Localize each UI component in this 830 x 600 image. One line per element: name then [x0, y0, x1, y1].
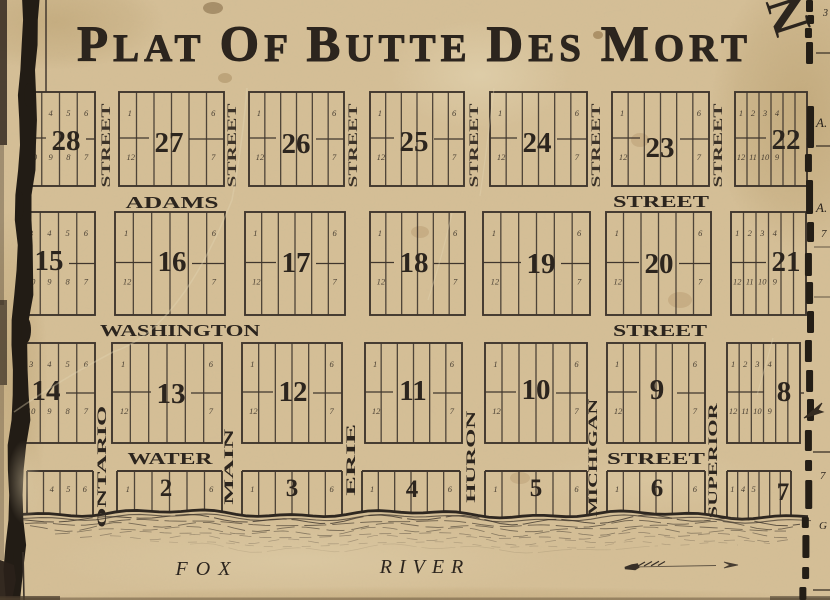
svg-text:12: 12: [256, 152, 265, 162]
svg-text:12: 12: [120, 406, 129, 416]
svg-text:12: 12: [492, 406, 501, 416]
svg-text:1: 1: [730, 484, 734, 494]
svg-text:12: 12: [614, 277, 623, 287]
svg-text:10: 10: [758, 277, 767, 287]
svg-text:3: 3: [762, 108, 767, 118]
svg-text:6: 6: [333, 228, 338, 238]
svg-text:6: 6: [577, 228, 582, 238]
svg-text:12: 12: [491, 277, 500, 287]
svg-text:12: 12: [619, 152, 628, 162]
svg-text:6: 6: [693, 484, 698, 494]
svg-text:STREET: STREET: [613, 321, 707, 340]
svg-text:7: 7: [333, 277, 338, 287]
svg-text:7: 7: [575, 152, 580, 162]
svg-text:7: 7: [821, 228, 827, 240]
svg-text:11: 11: [741, 406, 749, 416]
svg-text:7: 7: [450, 406, 455, 416]
svg-text:HURON: HURON: [464, 409, 478, 502]
svg-text:21: 21: [772, 246, 801, 278]
svg-text:7: 7: [820, 470, 826, 482]
svg-text:4: 4: [767, 359, 772, 369]
svg-text:19: 19: [527, 248, 556, 280]
svg-text:STREET: STREET: [613, 192, 709, 211]
svg-text:12: 12: [614, 406, 623, 416]
svg-text:ADAMS: ADAMS: [126, 193, 219, 212]
svg-text:6: 6: [209, 359, 214, 369]
svg-text:STREET: STREET: [711, 102, 725, 187]
svg-text:1: 1: [250, 484, 254, 494]
svg-text:1: 1: [731, 359, 735, 369]
svg-text:WATER: WATER: [128, 449, 215, 468]
svg-text:12: 12: [252, 277, 261, 287]
svg-text:3: 3: [286, 475, 299, 502]
svg-text:7: 7: [453, 277, 458, 287]
svg-text:1: 1: [250, 359, 254, 369]
svg-text:3: 3: [759, 228, 764, 238]
svg-text:RIVER: RIVER: [379, 556, 471, 578]
svg-text:A.: A.: [815, 115, 827, 130]
svg-text:7: 7: [697, 152, 702, 162]
svg-text:10: 10: [761, 152, 770, 162]
svg-text:15: 15: [35, 245, 64, 277]
svg-text:20: 20: [645, 248, 674, 280]
svg-text:ONTARIO: ONTARIO: [95, 406, 109, 528]
svg-text:7: 7: [577, 277, 582, 287]
svg-text:12: 12: [737, 152, 746, 162]
svg-text:12: 12: [249, 406, 258, 416]
svg-text:11: 11: [749, 152, 757, 162]
svg-text:1: 1: [128, 108, 132, 118]
svg-text:12: 12: [497, 152, 506, 162]
svg-text:1: 1: [253, 228, 257, 238]
svg-text:STREET: STREET: [607, 449, 705, 468]
svg-text:1: 1: [493, 359, 497, 369]
svg-text:5: 5: [530, 475, 543, 502]
svg-text:5: 5: [66, 359, 70, 369]
svg-text:1: 1: [739, 108, 743, 118]
svg-text:10: 10: [753, 406, 762, 416]
svg-text:1: 1: [615, 359, 619, 369]
svg-text:6: 6: [651, 475, 664, 502]
svg-text:5: 5: [66, 228, 70, 238]
svg-text:7: 7: [452, 152, 457, 162]
svg-text:FOX: FOX: [175, 558, 239, 580]
svg-text:11: 11: [399, 375, 426, 407]
svg-text:13: 13: [157, 378, 186, 410]
svg-text:7: 7: [330, 406, 335, 416]
svg-text:3: 3: [28, 359, 33, 369]
svg-text:G: G: [819, 520, 827, 532]
svg-text:2: 2: [160, 475, 173, 502]
svg-text:16: 16: [158, 246, 187, 278]
svg-text:1: 1: [121, 359, 125, 369]
svg-text:26: 26: [282, 128, 311, 160]
svg-text:STREET: STREET: [589, 102, 603, 187]
svg-text:1: 1: [615, 484, 619, 494]
svg-text:STREET: STREET: [99, 102, 113, 187]
svg-text:6: 6: [452, 108, 457, 118]
svg-text:12: 12: [377, 277, 386, 287]
svg-text:5: 5: [66, 108, 70, 118]
svg-text:1: 1: [498, 108, 502, 118]
svg-text:10: 10: [522, 374, 551, 406]
svg-text:7: 7: [693, 406, 698, 416]
svg-text:9: 9: [650, 374, 665, 406]
svg-text:5: 5: [66, 484, 70, 494]
svg-text:1: 1: [735, 228, 739, 238]
svg-text:1: 1: [373, 359, 377, 369]
svg-text:3: 3: [822, 8, 828, 19]
svg-text:A.: A.: [815, 200, 827, 215]
svg-text:12: 12: [123, 277, 132, 287]
svg-text:11: 11: [746, 277, 754, 287]
svg-text:27: 27: [155, 127, 184, 159]
svg-text:12: 12: [377, 152, 386, 162]
svg-text:7: 7: [332, 152, 337, 162]
svg-text:12: 12: [127, 152, 136, 162]
svg-text:1: 1: [370, 484, 374, 494]
svg-text:8: 8: [777, 376, 792, 408]
svg-text:WASHINGTON: WASHINGTON: [100, 321, 261, 340]
svg-text:6: 6: [330, 359, 335, 369]
svg-text:25: 25: [400, 126, 429, 158]
svg-text:STREET: STREET: [467, 102, 481, 187]
svg-text:1: 1: [620, 108, 624, 118]
svg-text:1: 1: [492, 228, 496, 238]
svg-text:12: 12: [733, 277, 742, 287]
svg-text:23: 23: [646, 132, 675, 164]
svg-text:1: 1: [615, 228, 619, 238]
svg-text:9: 9: [767, 406, 772, 416]
svg-text:1: 1: [378, 108, 382, 118]
svg-text:12: 12: [372, 406, 381, 416]
svg-text:MICHIGAN: MICHIGAN: [586, 398, 600, 517]
svg-text:MAIN: MAIN: [222, 427, 236, 505]
svg-text:5: 5: [752, 484, 756, 494]
svg-text:12: 12: [279, 376, 308, 408]
svg-text:4: 4: [406, 476, 419, 503]
svg-text:7: 7: [212, 277, 217, 287]
svg-text:17: 17: [282, 247, 311, 279]
svg-text:6: 6: [330, 484, 335, 494]
svg-text:ERIE: ERIE: [344, 424, 358, 496]
svg-text:1: 1: [126, 484, 130, 494]
svg-text:SUPERIOR: SUPERIOR: [706, 402, 720, 518]
svg-text:STREET: STREET: [346, 102, 360, 187]
svg-text:24: 24: [523, 127, 552, 159]
svg-text:6: 6: [575, 108, 580, 118]
svg-text:1: 1: [378, 228, 382, 238]
svg-text:3: 3: [754, 359, 759, 369]
svg-text:6: 6: [450, 359, 455, 369]
svg-text:6: 6: [693, 359, 698, 369]
svg-text:1: 1: [493, 484, 497, 494]
svg-text:7: 7: [209, 406, 214, 416]
svg-text:18: 18: [400, 247, 429, 279]
svg-text:6: 6: [448, 484, 453, 494]
svg-text:1: 1: [257, 108, 261, 118]
svg-text:28: 28: [52, 125, 81, 157]
svg-text:22: 22: [772, 124, 801, 156]
svg-text:6: 6: [332, 108, 337, 118]
svg-text:7: 7: [777, 479, 790, 506]
svg-text:1: 1: [124, 228, 128, 238]
svg-text:6: 6: [453, 228, 458, 238]
svg-text:6: 6: [697, 108, 702, 118]
svg-text:12: 12: [729, 406, 738, 416]
